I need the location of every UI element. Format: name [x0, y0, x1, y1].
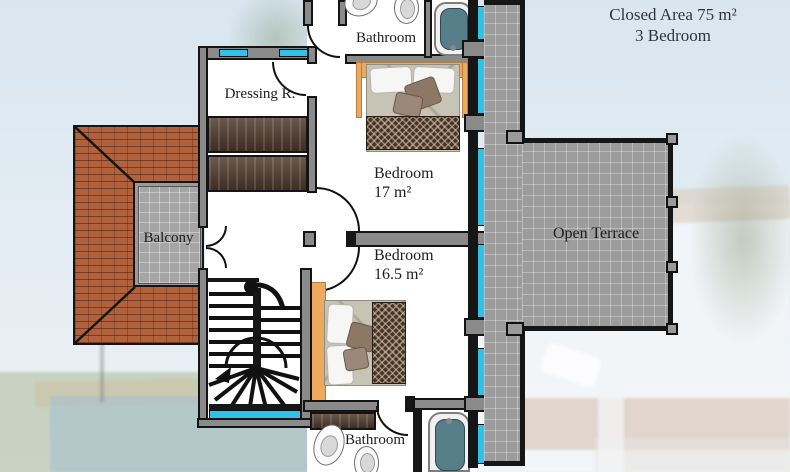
- terrace-border: [522, 326, 672, 331]
- bed-foot-runner: [366, 116, 460, 150]
- wall-bedroom2-south: [303, 400, 379, 412]
- background-walkway: [595, 438, 790, 472]
- bathroom-bottom-label: Bathroom: [330, 432, 420, 449]
- bedroom2-area: 16.5 m²: [374, 265, 434, 284]
- railing-post: [666, 133, 678, 145]
- balcony-label: Balcony: [135, 230, 202, 247]
- wall-tub2-west: [413, 408, 422, 472]
- railing-post: [666, 323, 678, 335]
- wall-dressing-east-stub: [307, 46, 317, 64]
- wall-tub-divider: [424, 0, 432, 58]
- window-marker: [279, 49, 308, 57]
- bedroom2-name: Bedroom: [374, 246, 434, 265]
- bed-cushion: [342, 346, 369, 372]
- closed-area-text: Closed Area 75 m²: [578, 4, 768, 25]
- terrace-border: [520, 330, 525, 464]
- bathroom-top-label: Bathroom: [346, 30, 426, 47]
- railing-post: [506, 322, 524, 336]
- bed-foot-runner: [372, 302, 406, 384]
- plan-title: Closed Area 75 m² 3 Bedroom: [578, 4, 768, 46]
- wall-divider-endcap: [346, 231, 356, 247]
- wall-stairs-south: [197, 418, 313, 428]
- bed-frame-side: [356, 62, 362, 118]
- floor-plan-canvas: Closed Area 75 m² 3 Bedroom Balcony Dres…: [0, 0, 790, 472]
- background-tree-right: [688, 135, 790, 345]
- wall-door-post: [303, 231, 316, 247]
- terrace-border: [520, 3, 525, 140]
- wall-dressing-east: [307, 96, 317, 193]
- terrace-border: [484, 461, 525, 466]
- terrace-strip-tiles: [484, 4, 522, 464]
- bedroom-count-text: 3 Bedroom: [578, 25, 768, 46]
- wardrobe-icon: [207, 155, 308, 192]
- railing-post: [506, 130, 524, 144]
- wall-hall-west: [303, 0, 313, 26]
- wardrobe-icon: [207, 116, 308, 153]
- bathroom-vanity: [310, 412, 376, 430]
- window-marker: [219, 49, 248, 57]
- stairs-winders-and-rail: [205, 275, 305, 425]
- bedroom1-label: Bedroom 17 m²: [374, 164, 434, 202]
- background-column: [598, 332, 624, 472]
- bedroom1-name: Bedroom: [374, 164, 434, 183]
- toilet-icon: [354, 446, 379, 472]
- terrace-border: [484, 0, 525, 5]
- dressing-room-label: Dressing R.: [210, 86, 310, 103]
- bedroom2-label: Bedroom 16.5 m²: [374, 246, 434, 284]
- railing-post: [666, 196, 678, 208]
- railing-post: [666, 261, 678, 273]
- terrace-border: [522, 138, 672, 143]
- bathtub-icon: [428, 412, 470, 472]
- open-terrace-label: Open Terrace: [522, 225, 670, 243]
- bedroom1-area: 17 m²: [374, 183, 434, 202]
